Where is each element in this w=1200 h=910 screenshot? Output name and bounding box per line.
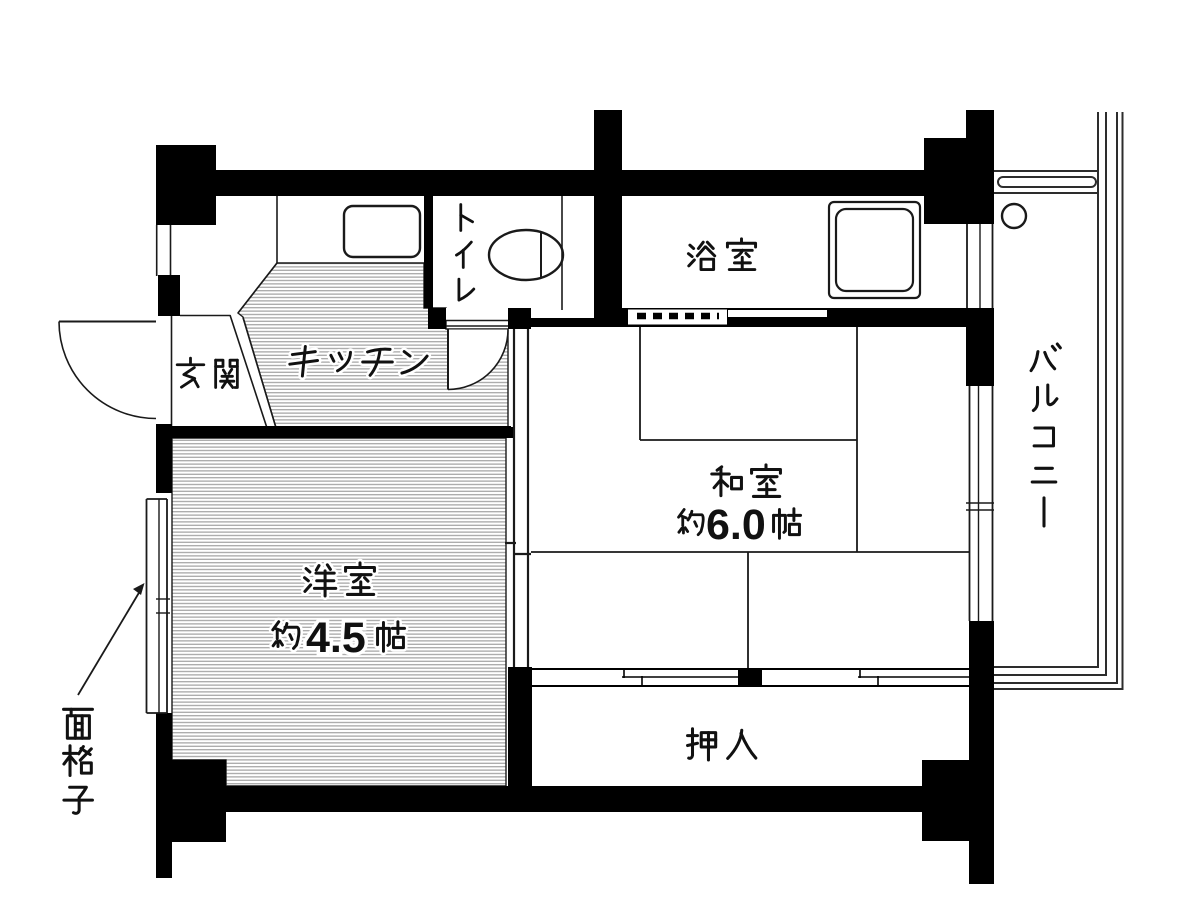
svg-text:4.5: 4.5 bbox=[306, 614, 366, 662]
svg-text:6.0: 6.0 bbox=[706, 501, 766, 549]
